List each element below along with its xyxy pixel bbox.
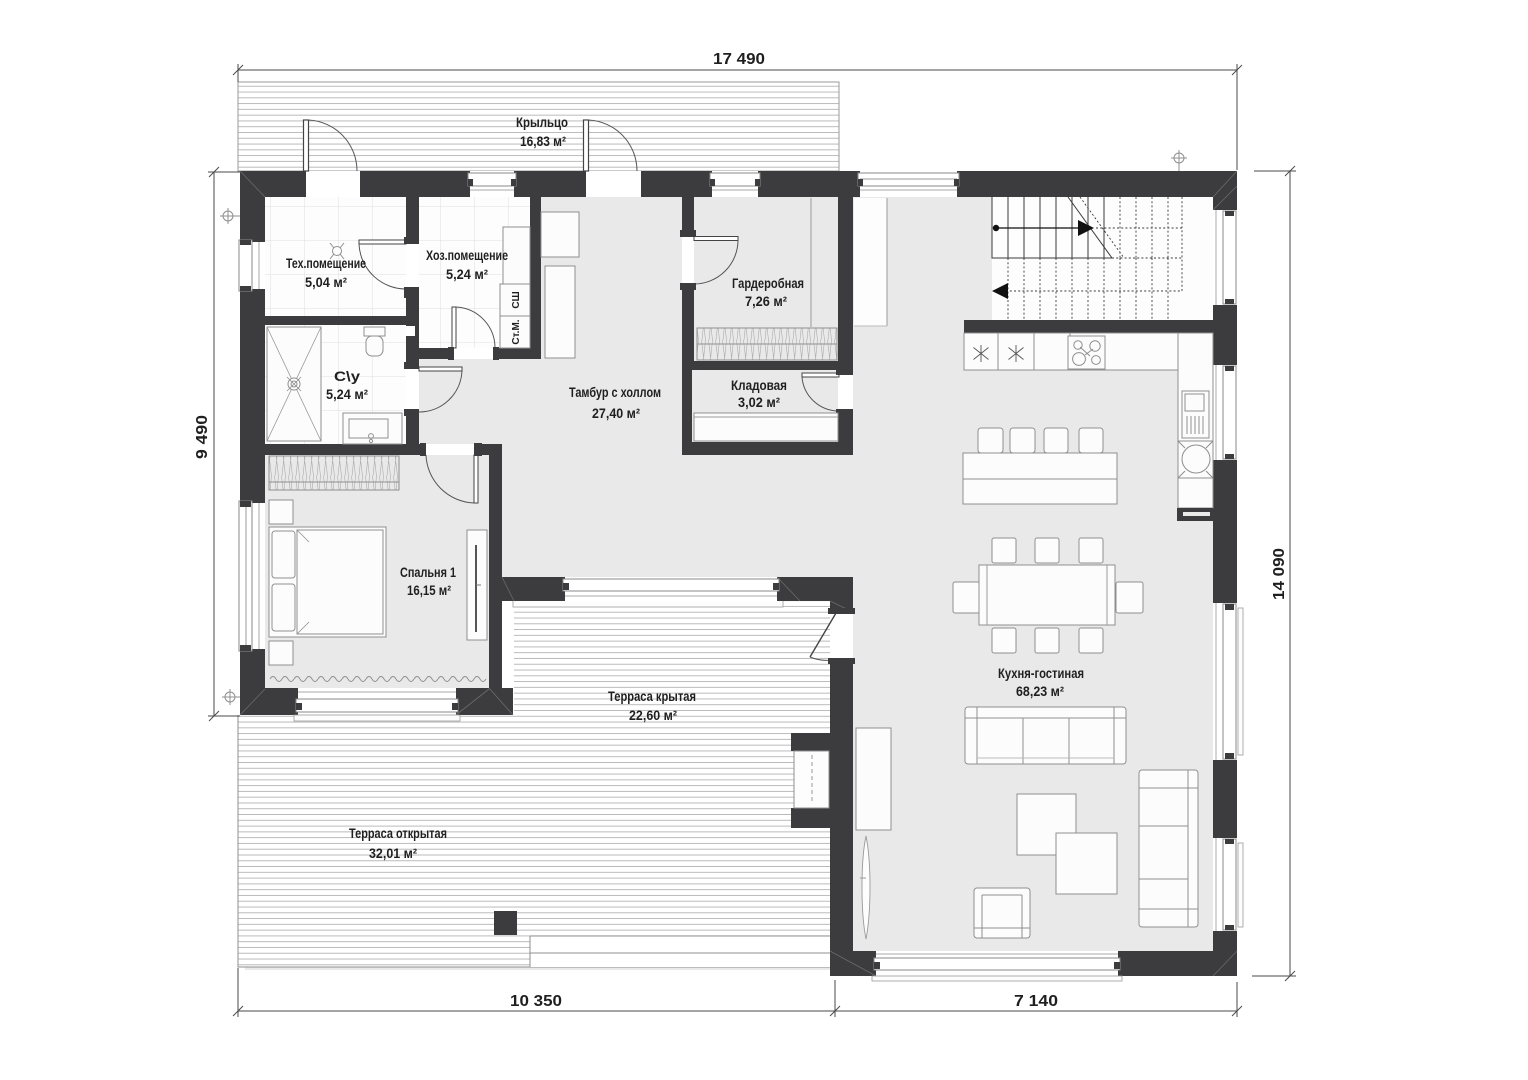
svg-text:Спальня 1: Спальня 1 [400,564,456,580]
svg-text:СШ: СШ [511,291,522,308]
svg-text:7,26 м²: 7,26 м² [745,293,787,309]
svg-text:14 090: 14 090 [1271,548,1288,600]
svg-text:16,83 м²: 16,83 м² [520,133,566,149]
svg-text:5,24 м²: 5,24 м² [446,266,488,282]
svg-text:10 350: 10 350 [510,993,562,1010]
svg-text:9 490: 9 490 [194,415,211,459]
svg-text:3,02 м²: 3,02 м² [738,394,780,410]
svg-text:С\у: С\у [334,368,360,384]
svg-text:Кухня-гостиная: Кухня-гостиная [998,665,1084,681]
svg-text:Тех.помещение: Тех.помещение [286,255,366,271]
svg-text:Тамбур с холлом: Тамбур с холлом [569,384,661,400]
svg-text:5,24 м²: 5,24 м² [326,386,368,402]
svg-text:5,04 м²: 5,04 м² [305,274,347,290]
svg-text:32,01 м²: 32,01 м² [369,845,417,861]
svg-text:Кладовая: Кладовая [731,377,787,393]
svg-text:Гардеробная: Гардеробная [732,275,804,291]
svg-text:22,60 м²: 22,60 м² [629,707,677,723]
svg-text:16,15 м²: 16,15 м² [407,582,451,598]
svg-text:7 140: 7 140 [1014,993,1058,1010]
svg-text:Хоз.помещение: Хоз.помещение [426,247,508,263]
svg-text:Терраса крытая: Терраса крытая [608,688,696,704]
svg-text:Терраса открытая: Терраса открытая [349,825,447,841]
svg-text:Ст.М.: Ст.М. [511,319,522,344]
svg-text:Крыльцо: Крыльцо [516,114,568,130]
svg-text:27,40 м²: 27,40 м² [592,405,640,421]
svg-text:68,23 м²: 68,23 м² [1016,683,1064,699]
svg-text:17 490: 17 490 [713,51,765,68]
